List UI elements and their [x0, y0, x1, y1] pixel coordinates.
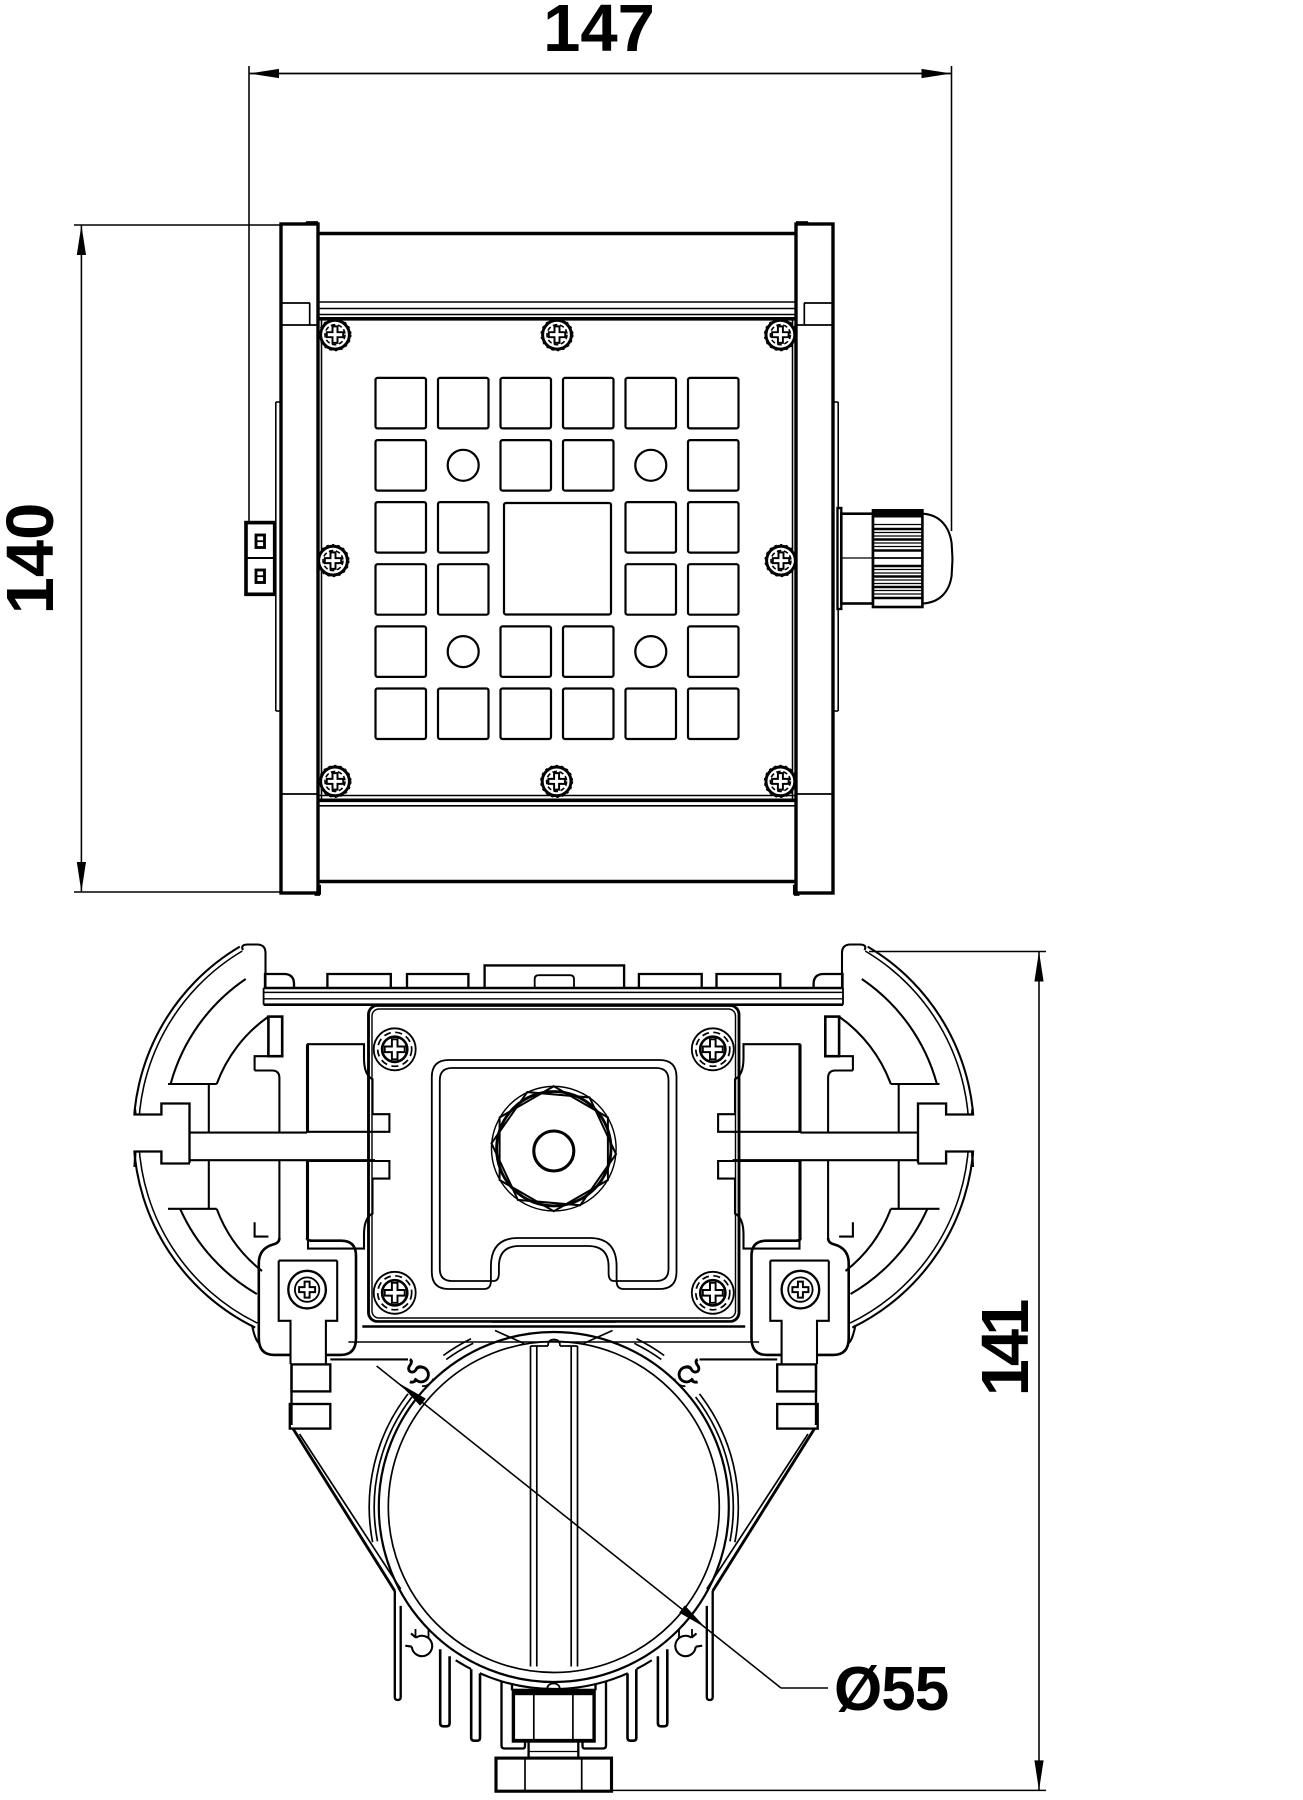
svg-text:Ø55: Ø55 [834, 1655, 948, 1724]
svg-text:147: 147 [543, 0, 655, 66]
svg-text:140: 140 [0, 503, 68, 615]
svg-text:141: 141 [968, 1300, 1043, 1397]
